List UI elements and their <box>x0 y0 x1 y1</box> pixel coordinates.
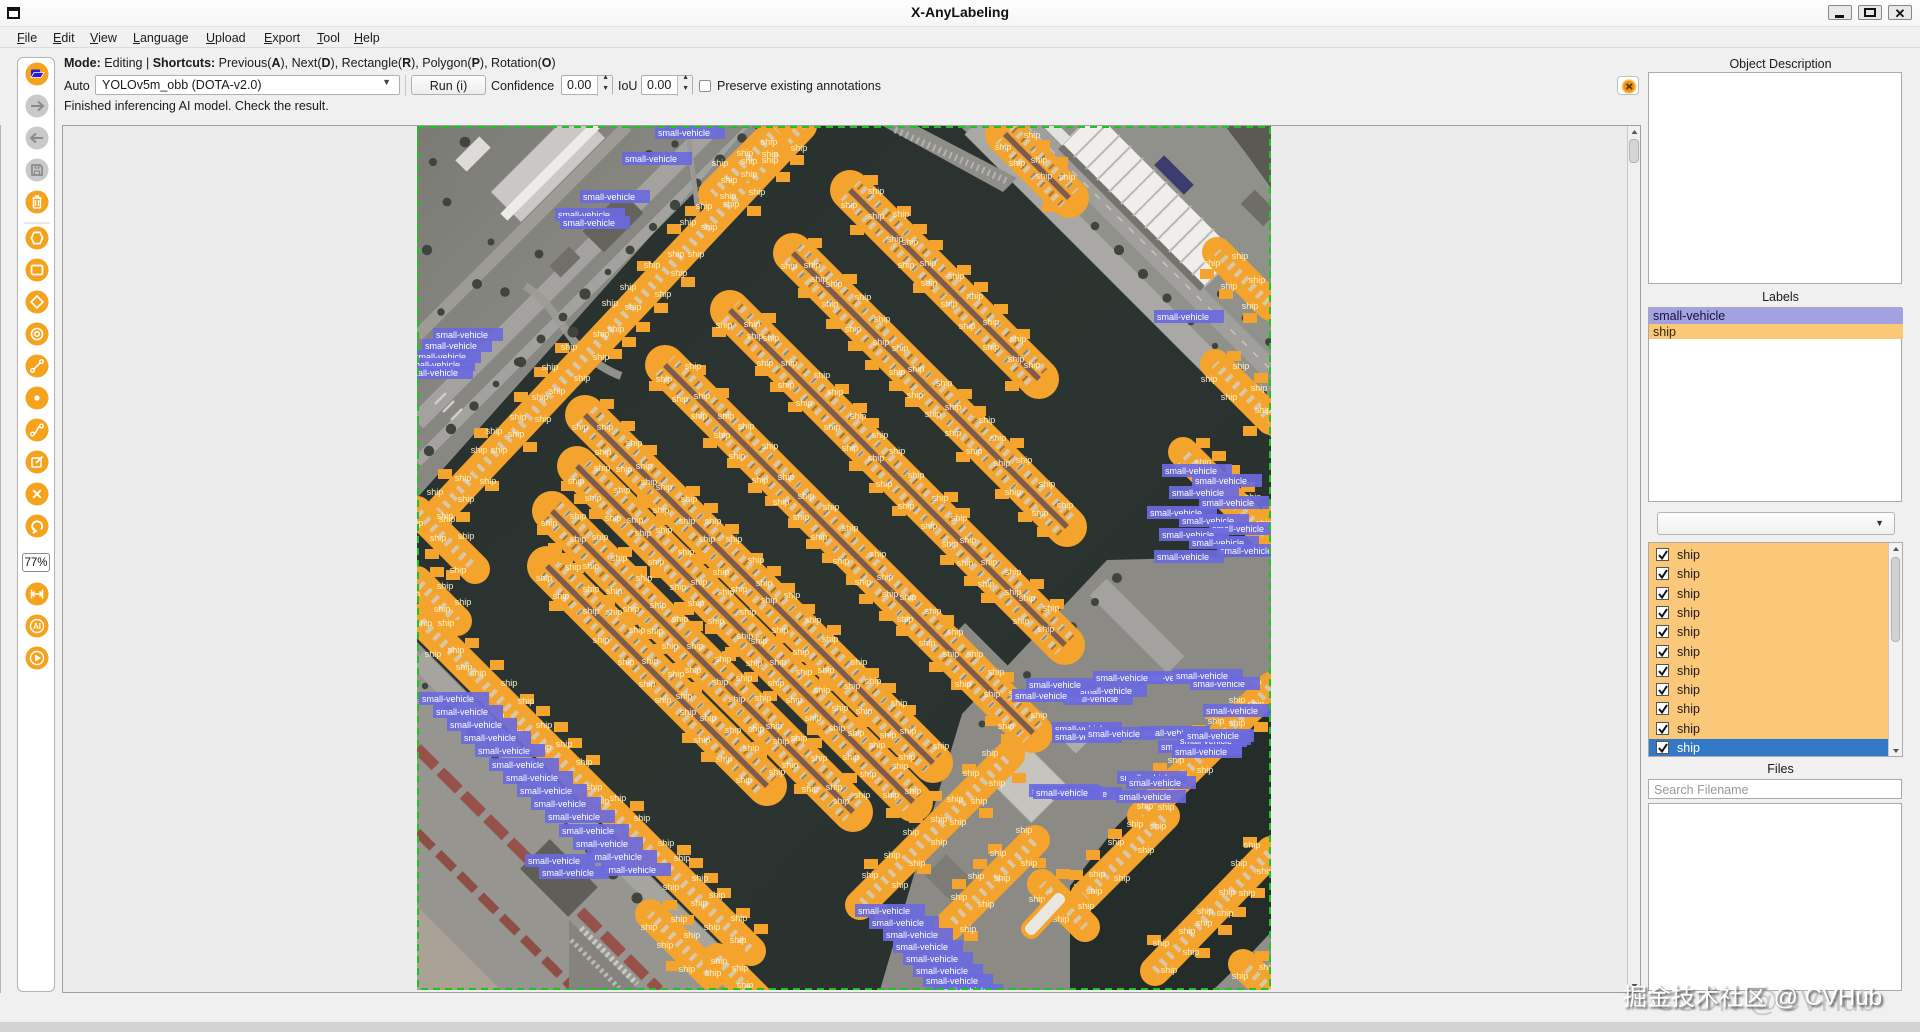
svg-text:small-vehicle: small-vehicle <box>528 856 580 866</box>
svg-text:ship: ship <box>709 890 726 900</box>
svg-text:ship: ship <box>1221 281 1238 291</box>
svg-text:ship: ship <box>856 706 873 716</box>
svg-text:ship: ship <box>814 685 831 695</box>
svg-text:ship: ship <box>1089 869 1106 879</box>
svg-text:ship: ship <box>947 794 964 804</box>
svg-text:ship: ship <box>662 641 679 651</box>
svg-text:ship: ship <box>1219 887 1236 897</box>
svg-text:ship: ship <box>951 892 968 902</box>
svg-text:ship: ship <box>778 472 795 482</box>
svg-text:ship: ship <box>841 200 858 210</box>
svg-text:ship: ship <box>925 606 942 616</box>
svg-text:ship: ship <box>674 853 691 863</box>
svg-text:ship: ship <box>909 858 926 868</box>
svg-text:ship: ship <box>1008 354 1025 364</box>
svg-text:ship: ship <box>668 669 685 679</box>
svg-text:ship: ship <box>967 649 984 659</box>
svg-text:ship: ship <box>798 491 815 501</box>
svg-text:ship: ship <box>900 726 917 736</box>
svg-text:ship: ship <box>1244 840 1261 850</box>
svg-text:ship: ship <box>948 271 965 281</box>
svg-text:ship: ship <box>855 292 872 302</box>
svg-text:ship: ship <box>1031 710 1048 720</box>
svg-text:ship: ship <box>943 649 960 659</box>
svg-text:ship: ship <box>796 398 813 408</box>
svg-text:ship: ship <box>480 476 497 486</box>
svg-text:ship: ship <box>1138 845 1155 855</box>
svg-text:ship: ship <box>1078 901 1095 911</box>
svg-text:ship: ship <box>826 782 843 792</box>
svg-text:ship: ship <box>786 695 803 705</box>
svg-text:ship: ship <box>740 607 757 617</box>
svg-text:ship: ship <box>804 260 821 270</box>
svg-text:ship: ship <box>805 713 822 723</box>
svg-text:small-vehicle: small-vehicle <box>590 852 642 862</box>
svg-text:ship: ship <box>713 567 730 577</box>
svg-text:small-vehicle: small-vehicle <box>425 341 477 351</box>
svg-text:ship: ship <box>501 678 518 688</box>
svg-text:ship: ship <box>1196 918 1213 928</box>
svg-text:ship: ship <box>561 342 578 352</box>
svg-text:small-vehicle: small-vehicle <box>604 865 656 875</box>
svg-text:ship: ship <box>705 968 722 978</box>
svg-text:ship: ship <box>932 493 949 503</box>
svg-text:ship: ship <box>1127 819 1144 829</box>
svg-text:ship: ship <box>872 430 889 440</box>
svg-text:ship: ship <box>458 494 475 504</box>
svg-text:ship: ship <box>751 636 768 646</box>
svg-text:ship: ship <box>822 634 839 644</box>
svg-text:small-vehicle: small-vehicle <box>1157 312 1209 322</box>
svg-text:ship: ship <box>658 838 675 848</box>
svg-text:ship: ship <box>990 433 1007 443</box>
svg-text:ship: ship <box>644 260 661 270</box>
svg-text:ship: ship <box>635 528 652 538</box>
svg-text:ship: ship <box>822 299 839 309</box>
svg-text:ship: ship <box>1201 374 1218 384</box>
svg-text:ship: ship <box>583 584 600 594</box>
svg-text:ship: ship <box>1255 405 1271 415</box>
svg-text:ship: ship <box>626 438 643 448</box>
svg-text:ship: ship <box>748 724 765 734</box>
svg-text:ship: ship <box>979 415 996 425</box>
svg-text:ship: ship <box>824 422 841 432</box>
svg-text:small-vehicle: small-vehicle <box>1176 671 1228 681</box>
svg-text:ship: ship <box>968 871 985 881</box>
svg-text:ship: ship <box>636 573 653 583</box>
svg-text:ship: ship <box>592 532 609 542</box>
svg-text:small-vehicle: small-vehicle <box>436 707 488 717</box>
svg-text:ship: ship <box>556 739 573 749</box>
svg-text:small-vehicle: small-vehicle <box>563 218 615 228</box>
svg-text:ship: ship <box>854 790 871 800</box>
svg-text:ship: ship <box>842 523 859 533</box>
svg-text:ship: ship <box>955 679 972 689</box>
svg-text:ship: ship <box>941 299 958 309</box>
svg-text:ship: ship <box>620 282 637 292</box>
svg-text:ship: ship <box>437 581 454 591</box>
svg-text:ship: ship <box>1039 479 1056 489</box>
svg-text:ship: ship <box>1016 455 1033 465</box>
svg-text:ship: ship <box>572 422 589 432</box>
svg-text:ship: ship <box>766 721 783 731</box>
svg-text:ship: ship <box>880 730 897 740</box>
svg-text:ship: ship <box>873 337 890 347</box>
svg-text:ship: ship <box>791 733 808 743</box>
svg-text:ship: ship <box>781 261 798 271</box>
svg-text:ship: ship <box>802 784 819 794</box>
svg-text:ship: ship <box>685 361 702 371</box>
svg-text:ship: ship <box>931 814 948 824</box>
svg-text:small-vehicle: small-vehicle <box>534 799 586 809</box>
svg-text:small-vehicle: small-vehicle <box>562 826 614 836</box>
svg-text:ship: ship <box>714 430 731 440</box>
svg-text:ship: ship <box>884 850 901 860</box>
svg-text:ship: ship <box>1229 718 1246 728</box>
svg-text:ship: ship <box>850 411 867 421</box>
svg-text:ship: ship <box>732 963 749 973</box>
svg-text:ship: ship <box>639 679 656 689</box>
svg-text:small-vehicle: small-vehicle <box>858 906 910 916</box>
svg-text:ship: ship <box>668 249 685 259</box>
svg-text:ship: ship <box>437 511 454 521</box>
svg-text:ship: ship <box>1179 926 1196 936</box>
svg-text:ship: ship <box>907 390 924 400</box>
svg-text:ship: ship <box>736 673 753 683</box>
svg-text:ship: ship <box>921 521 938 531</box>
svg-text:ship: ship <box>892 880 909 890</box>
svg-text:ship: ship <box>960 535 977 545</box>
svg-text:small-vehicle: small-vehicle <box>576 839 628 849</box>
svg-text:ship: ship <box>470 668 487 678</box>
svg-text:ship: ship <box>718 411 735 421</box>
svg-text:ship: ship <box>655 695 672 705</box>
svg-text:ship: ship <box>1217 908 1234 918</box>
svg-text:ship: ship <box>748 555 765 565</box>
svg-text:small-vehicle: small-vehicle <box>1096 673 1148 683</box>
svg-text:ship: ship <box>762 441 779 451</box>
svg-text:ship: ship <box>773 497 790 507</box>
svg-text:ship: ship <box>744 319 761 329</box>
svg-text:ship: ship <box>691 577 708 587</box>
svg-text:ship: ship <box>1232 971 1249 981</box>
svg-text:ship: ship <box>951 513 968 523</box>
svg-text:ship: ship <box>1161 965 1178 975</box>
svg-text:ship: ship <box>978 899 995 909</box>
svg-text:small-vehicle: small-vehicle <box>422 694 474 704</box>
svg-text:ship: ship <box>1221 392 1238 402</box>
svg-text:small-vehicle: small-vehicle <box>548 812 600 822</box>
svg-text:ship: ship <box>905 786 922 796</box>
svg-text:ship: ship <box>749 187 766 197</box>
svg-text:ship: ship <box>882 589 899 599</box>
svg-text:ship: ship <box>711 956 728 966</box>
svg-text:ship: ship <box>945 402 962 412</box>
svg-text:ship: ship <box>486 426 503 436</box>
svg-text:small-vehicle: small-vehicle <box>906 954 958 964</box>
svg-text:ship: ship <box>425 649 442 659</box>
svg-text:ship: ship <box>680 217 697 227</box>
svg-text:ship: ship <box>570 534 587 544</box>
svg-text:ship: ship <box>656 525 673 535</box>
svg-text:ship: ship <box>1150 821 1167 831</box>
svg-text:ship: ship <box>981 557 998 567</box>
svg-text:ship: ship <box>862 870 879 880</box>
svg-text:ship: ship <box>618 657 635 667</box>
svg-text:ship: ship <box>1204 258 1221 268</box>
svg-text:ship: ship <box>536 573 553 583</box>
svg-text:ship: ship <box>1019 593 1036 603</box>
svg-text:small-vehicle: small-vehicle <box>1015 691 1067 701</box>
svg-text:ship: ship <box>1021 858 1038 868</box>
svg-text:ship: ship <box>994 873 1011 883</box>
svg-text:ship: ship <box>583 561 600 571</box>
svg-text:ship: ship <box>990 848 1007 858</box>
svg-text:ship: ship <box>688 249 705 259</box>
svg-text:ship: ship <box>1158 802 1175 812</box>
svg-text:ship: ship <box>738 421 755 431</box>
svg-text:ship: ship <box>718 587 735 597</box>
svg-text:small-vehicle: small-vehicle <box>1129 778 1181 788</box>
svg-text:ship: ship <box>1232 251 1249 261</box>
svg-text:ship: ship <box>634 813 651 823</box>
svg-text:ship: ship <box>892 761 909 771</box>
svg-text:ship: ship <box>995 142 1012 152</box>
svg-text:ship: ship <box>784 590 801 600</box>
svg-text:small-vehicle: small-vehicle <box>464 733 516 743</box>
svg-text:ship: ship <box>614 485 631 495</box>
svg-text:ship: ship <box>716 754 733 764</box>
svg-text:ship: ship <box>844 681 861 691</box>
svg-text:ship: ship <box>1024 360 1041 370</box>
svg-text:ship: ship <box>593 635 610 645</box>
svg-text:ship: ship <box>625 302 642 312</box>
svg-text:small-vehicle: small-vehicle <box>492 760 544 770</box>
svg-text:ship: ship <box>629 625 646 635</box>
svg-text:ship: ship <box>773 736 790 746</box>
svg-text:ship: ship <box>1108 837 1125 847</box>
svg-text:ship: ship <box>672 394 689 404</box>
svg-text:ship: ship <box>611 553 628 563</box>
svg-text:ship: ship <box>606 586 623 596</box>
svg-text:ship: ship <box>833 556 850 566</box>
svg-text:ship: ship <box>903 827 920 837</box>
svg-text:ship: ship <box>957 558 974 568</box>
svg-text:ship: ship <box>1231 858 1248 868</box>
svg-text:ship: ship <box>455 473 472 483</box>
svg-text:small-vehicle: small-vehicle <box>1206 706 1258 716</box>
svg-text:ship: ship <box>950 817 967 827</box>
svg-text:small-vehicle: small-vehicle <box>872 918 924 928</box>
svg-text:ship: ship <box>679 516 696 526</box>
svg-text:ship: ship <box>729 694 746 704</box>
svg-text:ship: ship <box>648 557 665 567</box>
svg-text:ship: ship <box>657 940 674 950</box>
svg-text:ship: ship <box>694 735 711 745</box>
svg-text:small-vehicle: small-vehicle <box>583 192 635 202</box>
svg-text:ship: ship <box>417 618 432 628</box>
svg-text:AI: AI <box>33 622 41 631</box>
svg-text:ship: ship <box>945 428 962 438</box>
svg-text:ship: ship <box>869 740 886 750</box>
svg-text:ship: ship <box>672 614 689 624</box>
svg-text:ship: ship <box>967 291 984 301</box>
svg-text:ship: ship <box>438 618 455 628</box>
svg-text:ship: ship <box>1153 938 1170 948</box>
svg-text:ship: ship <box>876 479 893 489</box>
svg-text:ship: ship <box>570 511 587 521</box>
svg-text:ship: ship <box>705 516 722 526</box>
svg-text:ship: ship <box>583 606 600 616</box>
svg-text:ship: ship <box>663 882 680 892</box>
svg-text:ship: ship <box>933 741 950 751</box>
svg-text:ship: ship <box>1229 695 1246 705</box>
svg-text:ship: ship <box>597 422 614 432</box>
svg-text:ship: ship <box>791 143 808 153</box>
svg-text:ship: ship <box>715 654 732 664</box>
svg-text:ship: ship <box>508 429 525 439</box>
svg-text:ship: ship <box>681 494 698 504</box>
svg-text:ship: ship <box>678 547 695 557</box>
svg-text:ship: ship <box>814 370 831 380</box>
svg-text:ship: ship <box>811 753 828 763</box>
svg-text:ship: ship <box>696 201 713 211</box>
svg-text:ship: ship <box>729 451 746 461</box>
svg-text:ship: ship <box>902 237 919 247</box>
svg-text:ship: ship <box>942 539 959 549</box>
svg-text:ship: ship <box>636 461 653 471</box>
svg-text:ship: ship <box>1036 171 1053 181</box>
svg-text:ship: ship <box>471 445 488 455</box>
svg-text:ship: ship <box>898 501 915 511</box>
svg-text:ship: ship <box>670 582 687 592</box>
svg-text:ship: ship <box>586 782 603 792</box>
svg-text:ship: ship <box>891 698 908 708</box>
svg-text:ship: ship <box>919 638 936 648</box>
svg-text:ship: ship <box>434 604 451 614</box>
svg-text:small-vehicle: small-vehicle <box>886 930 938 940</box>
svg-text:ship: ship <box>701 222 718 232</box>
svg-text:ship: ship <box>737 148 754 158</box>
svg-text:ship: ship <box>427 487 444 497</box>
svg-text:small-vehicle: small-vehicle <box>1029 680 1081 690</box>
svg-text:ship: ship <box>716 320 733 330</box>
svg-text:ship: ship <box>576 757 593 767</box>
svg-text:small-vehicle: small-vehicle <box>1195 476 1247 486</box>
svg-text:ship: ship <box>1043 603 1060 613</box>
svg-text:ship: ship <box>796 667 813 677</box>
svg-text:ship: ship <box>743 743 760 753</box>
svg-text:ship: ship <box>553 591 570 601</box>
svg-text:ship: ship <box>778 380 795 390</box>
svg-text:ship: ship <box>616 464 633 474</box>
svg-text:ship: ship <box>1257 866 1271 876</box>
svg-text:ship: ship <box>650 600 667 610</box>
svg-text:ship: ship <box>1031 155 1048 165</box>
svg-text:ship: ship <box>691 411 708 421</box>
svg-text:small-vehicle: small-vehicle <box>658 128 710 138</box>
svg-text:ship: ship <box>712 158 729 168</box>
svg-text:ship: ship <box>1251 383 1268 393</box>
svg-text:ship: ship <box>805 615 822 625</box>
svg-text:ship: ship <box>736 775 753 785</box>
svg-text:ship: ship <box>761 595 778 605</box>
svg-text:ship: ship <box>826 279 843 289</box>
svg-text:ship: ship <box>1024 130 1041 140</box>
svg-text:ship: ship <box>655 289 672 299</box>
svg-text:ship: ship <box>989 778 1006 788</box>
svg-text:ship: ship <box>827 387 844 397</box>
svg-text:ship: ship <box>966 446 983 456</box>
svg-text:ship: ship <box>770 657 787 667</box>
svg-text:ship: ship <box>982 748 999 758</box>
svg-text:ship: ship <box>1239 888 1256 898</box>
svg-text:ship: ship <box>448 645 465 655</box>
svg-text:ship: ship <box>608 324 625 334</box>
svg-text:ship: ship <box>688 598 705 608</box>
svg-text:ship: ship <box>430 533 447 543</box>
svg-text:ship: ship <box>898 260 915 270</box>
svg-text:ship: ship <box>908 364 925 374</box>
svg-text:ship: ship <box>768 678 785 688</box>
svg-text:ship: ship <box>656 482 673 492</box>
svg-text:ship: ship <box>1059 172 1076 182</box>
svg-text:small-vehicle: small-vehicle <box>1119 792 1171 802</box>
svg-text:ship: ship <box>781 358 798 368</box>
svg-text:ship: ship <box>762 149 779 159</box>
svg-text:ship: ship <box>1197 906 1214 916</box>
svg-text:ship: ship <box>851 657 868 667</box>
svg-text:ship: ship <box>730 935 747 945</box>
svg-text:small-vehicle: small-vehicle <box>1036 788 1088 798</box>
svg-text:ship: ship <box>971 796 988 806</box>
svg-text:ship: ship <box>708 616 725 626</box>
svg-text:ship: ship <box>535 414 552 424</box>
svg-text:ship: ship <box>855 577 872 587</box>
svg-text:small-vehicle: small-vehicle <box>450 720 502 730</box>
svg-text:ship: ship <box>623 604 640 614</box>
svg-text:ship: ship <box>978 579 995 589</box>
svg-text:ship: ship <box>889 367 906 377</box>
svg-text:ship: ship <box>752 475 769 485</box>
svg-text:ship: ship <box>700 713 717 723</box>
svg-text:small-vehicle: small-vehicle <box>1157 552 1209 562</box>
svg-text:small-vehicle: small-vehicle <box>417 368 458 378</box>
svg-text:ship: ship <box>761 137 778 147</box>
svg-text:ship: ship <box>549 386 566 396</box>
svg-text:ship: ship <box>726 534 743 544</box>
svg-text:ship: ship <box>892 343 909 353</box>
svg-text:small-vehicle: small-vehicle <box>1220 546 1271 556</box>
svg-text:ship: ship <box>959 321 976 331</box>
svg-text:small-vehicle: small-vehicle <box>1175 747 1227 757</box>
svg-text:ship: ship <box>897 614 914 624</box>
svg-text:ship: ship <box>679 964 696 974</box>
svg-text:ship: ship <box>860 769 877 779</box>
svg-text:ship: ship <box>893 209 910 219</box>
svg-text:ship: ship <box>692 873 709 883</box>
svg-text:ship: ship <box>741 169 758 179</box>
svg-text:small-vehicle: small-vehicle <box>542 868 594 878</box>
svg-text:ship: ship <box>755 693 772 703</box>
svg-text:ship: ship <box>1249 275 1266 285</box>
svg-text:ship: ship <box>931 837 948 847</box>
svg-text:ship: ship <box>1009 158 1026 168</box>
svg-text:ship: ship <box>1086 886 1103 896</box>
svg-text:ship: ship <box>518 696 535 706</box>
svg-text:ship: ship <box>684 930 701 940</box>
svg-text:ship: ship <box>542 362 559 372</box>
